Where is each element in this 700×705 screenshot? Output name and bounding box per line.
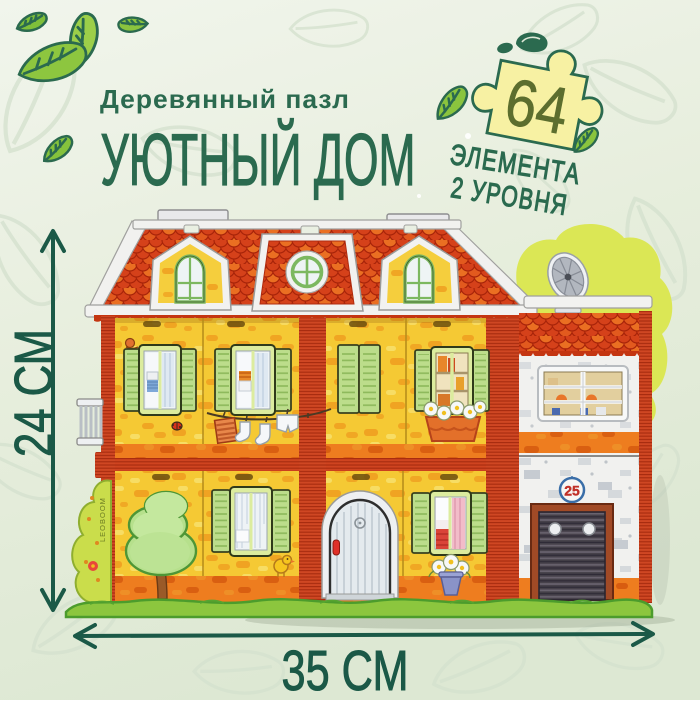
svg-text:35 СМ: 35 СМ: [282, 639, 409, 700]
svg-text:24 СМ: 24 СМ: [4, 329, 64, 457]
svg-text:УЮТНЫЙ ДОМ: УЮТНЫЙ ДОМ: [101, 119, 416, 201]
svg-text:LEOBOOM: LEOBOOM: [98, 497, 107, 542]
svg-text:Деревянный пазл: Деревянный пазл: [100, 84, 350, 114]
svg-text:25: 25: [564, 483, 580, 499]
